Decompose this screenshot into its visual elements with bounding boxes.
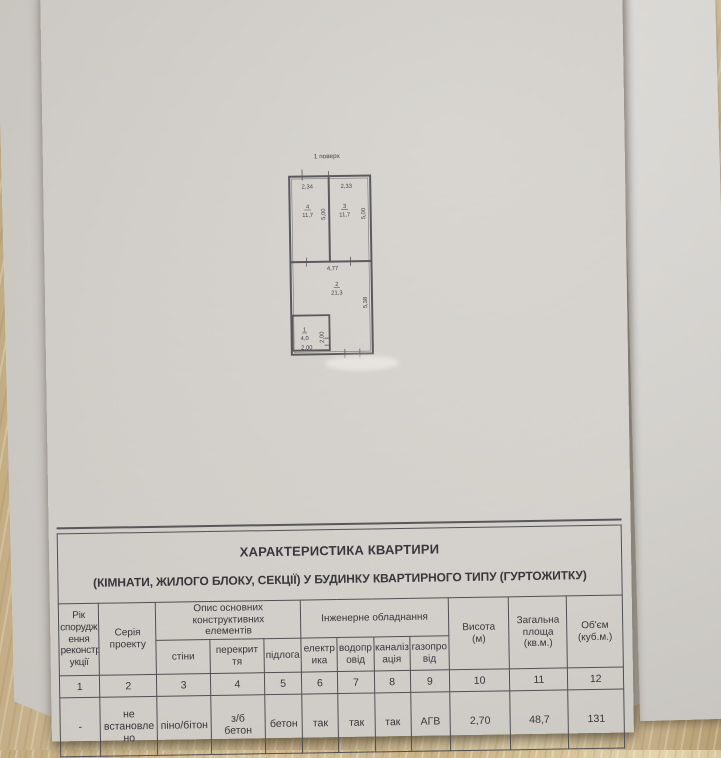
header-year-built: Рік спорудж ення реконстр укції [58, 603, 99, 676]
header-sewerage: каналіз ація [373, 637, 410, 672]
apartment-characteristics-table: ХАРАКТЕРИСТИКА КВАРТИРИ (КІМНАТИ, ЖИЛОГО… [57, 525, 625, 758]
dim-width-room3: 2,33 [341, 184, 352, 190]
column-number: 1 [59, 676, 100, 699]
header-height: Висота (м) [448, 597, 509, 670]
header-volume: Об'єм (куб.м.) [567, 595, 624, 668]
column-number: 10 [449, 669, 510, 692]
table-title-line1: ХАРАКТЕРИСТИКА КВАРТИРИ [59, 538, 620, 562]
column-number: 12 [568, 667, 624, 690]
room2-number: 2 [335, 282, 338, 288]
column-number: 8 [374, 671, 411, 694]
header-total-area: Загальна площа (кв.м.) [508, 596, 567, 669]
room4-number: 4 [306, 204, 310, 210]
header-floor: підлога [264, 638, 302, 673]
dim-width-room1: 2,00 [301, 345, 312, 351]
value-walls: піно/бітон [157, 696, 211, 756]
room3-number: 3 [343, 204, 346, 210]
header-ceiling: перекрит тя [210, 639, 265, 674]
value-project-series: не встановле но [100, 697, 158, 757]
value-year-built: - [60, 698, 101, 758]
value-height: 2,70 [450, 691, 511, 751]
value-sewerage: так [374, 693, 411, 753]
room2-area: 21,3 [331, 290, 342, 296]
room4-area: 11,7 [302, 213, 313, 219]
header-group-engineering: Інженерне обладнання [300, 598, 448, 639]
erased-text-smudge [325, 355, 399, 371]
room3-area: 11,7 [339, 212, 350, 218]
value-volume: 131 [568, 689, 624, 749]
header-project-series: Серія проекту [98, 602, 156, 675]
value-gas-supply: АГВ [410, 692, 450, 752]
document-page: 1 поверх [40, 0, 634, 742]
dim-width-room2: 4,77 [327, 266, 338, 272]
value-floor: бетон [265, 694, 303, 754]
photo-of-document: { "plan": { "title": "1 поверх", "room4"… [0, 0, 721, 750]
dim-height-room1: 2,00 [320, 332, 326, 343]
column-number: 6 [302, 672, 339, 695]
data-row: - не встановле но піно/бітон з/б бетон б… [60, 689, 625, 757]
column-number: 7 [338, 671, 375, 694]
floor-label: 1 поверх [314, 153, 341, 160]
dim-width-room4: 2,34 [302, 184, 314, 190]
column-number: 3 [157, 674, 211, 697]
floor-plan-drawing: 1 поверх [280, 140, 434, 367]
header-gas-supply: газопро від [410, 636, 450, 671]
value-ceiling: з/б бетон [210, 695, 265, 755]
room1-area: 4,0 [301, 336, 309, 342]
column-number: 2 [100, 675, 158, 698]
value-total-area: 48,7 [510, 690, 569, 750]
header-walls: стіни [156, 640, 210, 675]
value-water-supply: так [338, 693, 375, 753]
dim-height-room3: 5,00 [361, 208, 367, 219]
column-number: 9 [410, 670, 450, 693]
dim-height-room2: 5,38 [363, 297, 369, 308]
table-title-line2: (КІМНАТИ, ЖИЛОГО БЛОКУ, СЕКЦІЇ) У БУДИНК… [59, 567, 620, 590]
column-number: 5 [264, 672, 302, 695]
header-electricity: електр ика [301, 638, 338, 673]
header-water-supply: водопр овід [337, 637, 374, 672]
header-group-construction: Опис основних конструктивних елементів [156, 600, 301, 641]
header-row-groups: Рік спорудж ення реконстр укції Серія пр… [58, 595, 623, 642]
table-title-row: ХАРАКТЕРИСТИКА КВАРТИРИ (КІМНАТИ, ЖИЛОГО… [57, 525, 622, 604]
dim-height-room4: 5,00 [321, 208, 327, 219]
room1-number: 1 [303, 327, 306, 333]
plan-walls [289, 168, 373, 359]
value-electricity: так [302, 694, 339, 754]
column-number: 11 [510, 668, 569, 691]
column-number: 4 [210, 673, 265, 696]
table-title: ХАРАКТЕРИСТИКА КВАРТИРИ (КІМНАТИ, ЖИЛОГО… [57, 525, 622, 604]
